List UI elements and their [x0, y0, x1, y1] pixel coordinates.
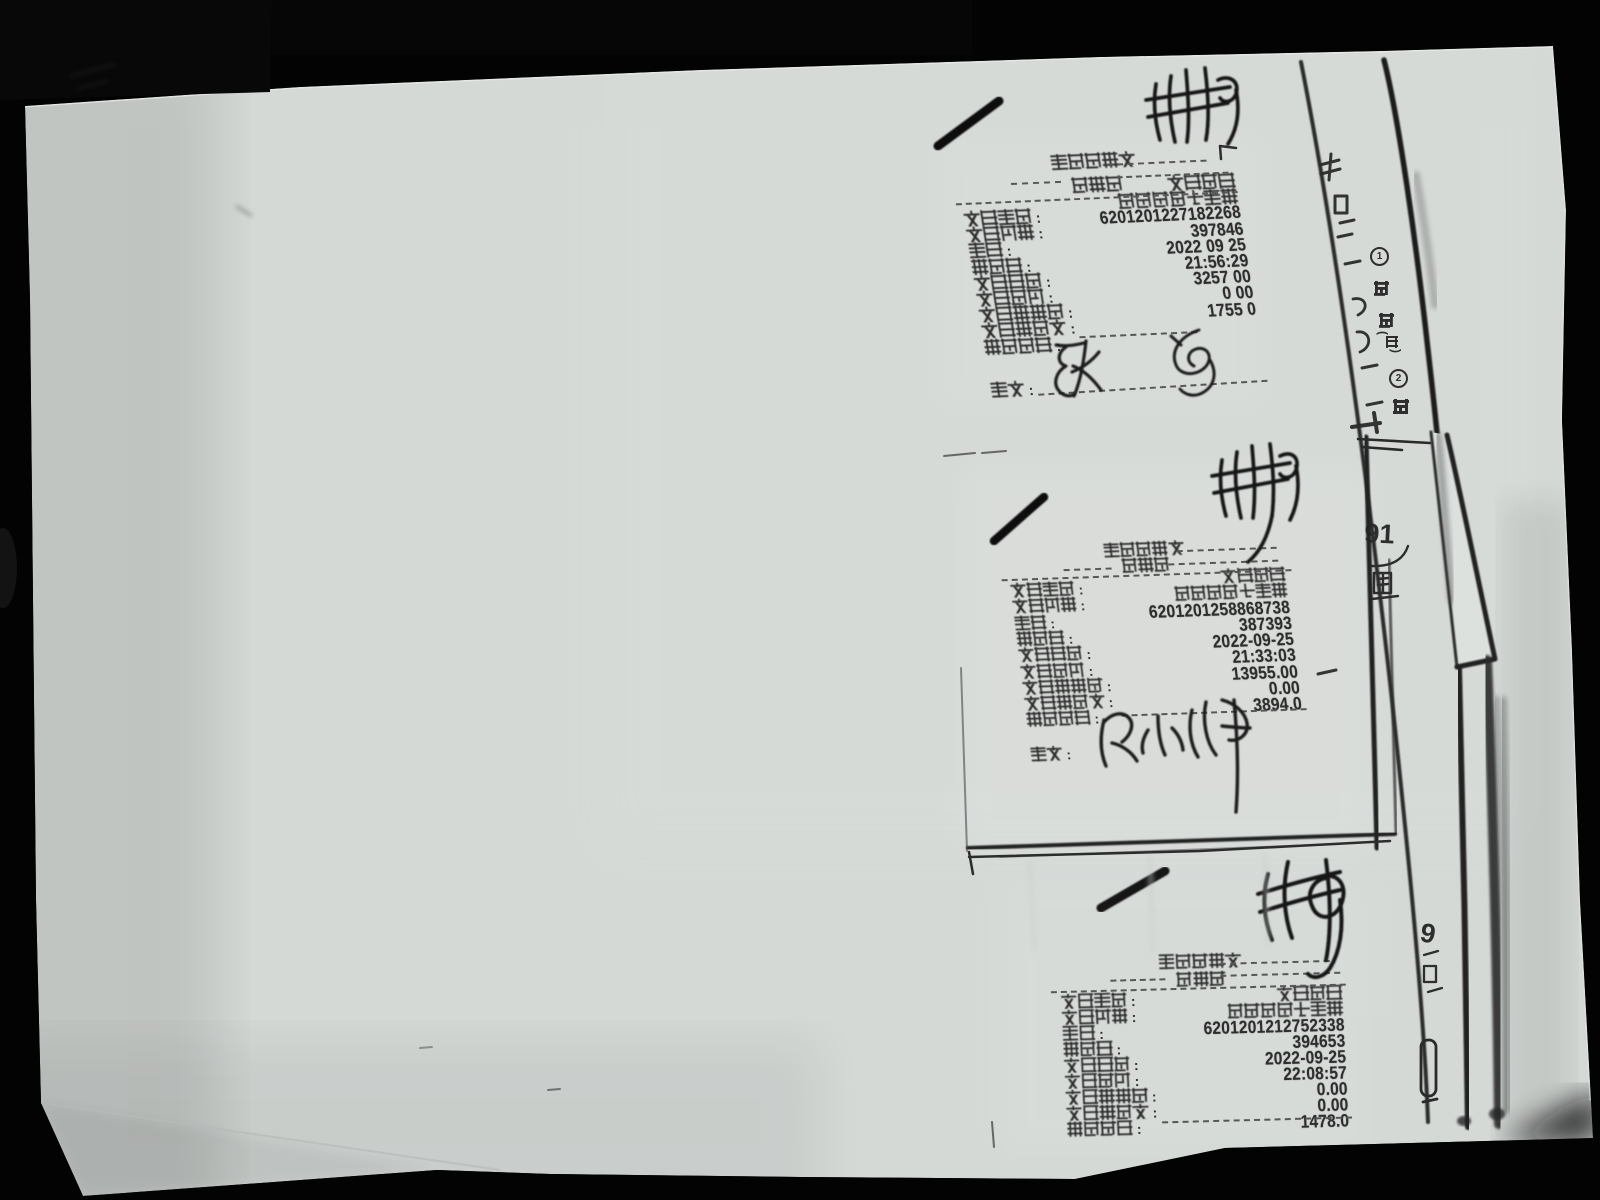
svg-text:9: 9 [1418, 917, 1438, 949]
